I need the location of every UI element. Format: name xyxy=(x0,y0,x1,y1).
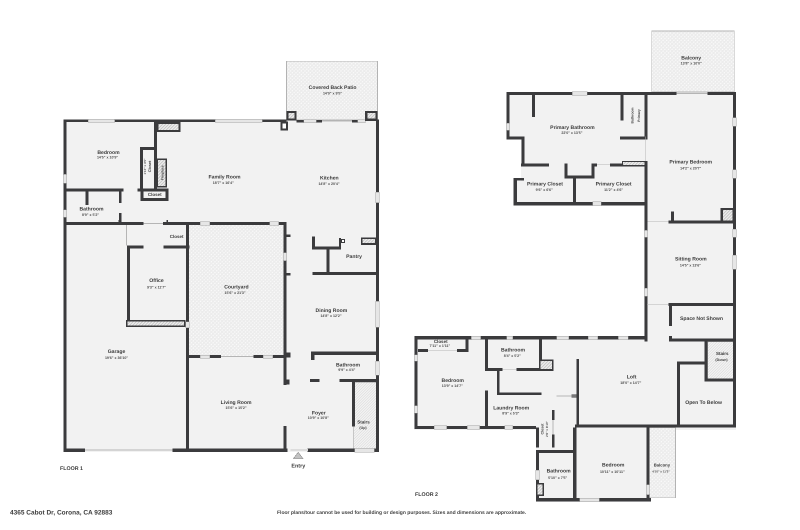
svg-text:9'9" x 4'4": 9'9" x 4'4" xyxy=(338,368,355,372)
svg-text:14'2" x 20'7": 14'2" x 20'7" xyxy=(680,166,701,170)
svg-text:14'8" x 20'4": 14'8" x 20'4" xyxy=(318,182,339,186)
svg-text:Closet: Closet xyxy=(170,234,184,239)
svg-text:Entry: Entry xyxy=(291,463,305,469)
svg-text:5'10" x 7'5": 5'10" x 7'5" xyxy=(548,476,567,480)
svg-text:(Up): (Up) xyxy=(359,426,367,430)
svg-text:22'0" x 13'5": 22'0" x 13'5" xyxy=(561,131,582,135)
svg-text:4365 Cabot Dr, Corona, CA 9288: 4365 Cabot Dr, Corona, CA 92883 xyxy=(10,510,113,517)
svg-text:Office: Office xyxy=(149,278,164,284)
svg-text:Balcony: Balcony xyxy=(681,55,701,61)
svg-text:Bathroom: Bathroom xyxy=(501,348,526,354)
svg-text:14'9" x 9'5": 14'9" x 9'5" xyxy=(323,91,342,95)
svg-text:(Down): (Down) xyxy=(715,358,728,362)
svg-text:18'0" x 14'7": 18'0" x 14'7" xyxy=(620,381,641,385)
svg-text:14'8" x 12'2": 14'8" x 12'2" xyxy=(320,314,341,318)
svg-text:Family Room: Family Room xyxy=(209,175,241,181)
svg-text:Primary Closet: Primary Closet xyxy=(596,182,632,188)
svg-text:Bedroom: Bedroom xyxy=(442,378,465,384)
svg-text:8'9" x 5'2": 8'9" x 5'2" xyxy=(82,213,99,217)
svg-text:Primary Bedroom: Primary Bedroom xyxy=(669,159,712,165)
svg-text:Floor plans/tour cannot be use: Floor plans/tour cannot be used for buil… xyxy=(277,510,527,516)
svg-text:Dining Room: Dining Room xyxy=(316,308,348,314)
svg-text:9'3" x 11'7": 9'3" x 11'7" xyxy=(147,285,166,289)
svg-text:FLOOR 1: FLOOR 1 xyxy=(60,466,83,472)
svg-text:Closet: Closet xyxy=(541,423,545,435)
svg-text:13'8" x 10'0": 13'8" x 10'0" xyxy=(681,62,702,66)
svg-text:Laundry Room: Laundry Room xyxy=(493,405,529,411)
svg-text:Sitting Room: Sitting Room xyxy=(675,256,707,262)
svg-text:18'7" x 16'4": 18'7" x 16'4" xyxy=(213,181,234,185)
svg-text:Covered Back Patio: Covered Back Patio xyxy=(309,85,357,91)
svg-text:Living Room: Living Room xyxy=(221,400,252,406)
svg-text:Kitchen: Kitchen xyxy=(320,176,339,182)
svg-text:13'9" x 14'7": 13'9" x 14'7" xyxy=(442,384,463,388)
svg-text:Pantry: Pantry xyxy=(346,254,362,260)
svg-text:14'5" x 10'9": 14'5" x 10'9" xyxy=(97,155,118,159)
svg-text:Stairs: Stairs xyxy=(716,351,729,356)
svg-text:10'11" x 10'11": 10'11" x 10'11" xyxy=(600,470,625,474)
svg-text:15'6" x 15'2": 15'6" x 15'2" xyxy=(226,406,247,410)
svg-text:Garage: Garage xyxy=(108,349,126,355)
svg-text:Bedroom: Bedroom xyxy=(602,463,625,469)
svg-text:Primary Bathroom: Primary Bathroom xyxy=(550,125,595,131)
svg-text:Open To Below: Open To Below xyxy=(685,400,722,406)
svg-text:Closet: Closet xyxy=(148,160,152,172)
svg-text:Closet: Closet xyxy=(148,192,162,197)
svg-text:Closet: Closet xyxy=(434,339,448,344)
svg-text:11'2" x 4'6": 11'2" x 4'6" xyxy=(604,188,623,192)
svg-text:Balcony: Balcony xyxy=(654,462,671,467)
svg-text:Primary Closet: Primary Closet xyxy=(527,182,563,188)
svg-text:Loft: Loft xyxy=(627,374,637,380)
svg-text:Fireplace: Fireplace xyxy=(160,165,164,180)
svg-text:7'11" x 1'11": 7'11" x 1'11" xyxy=(430,344,451,348)
svg-text:9'6" x 6'6": 9'6" x 6'6" xyxy=(536,188,553,192)
svg-text:FLOOR 2: FLOOR 2 xyxy=(415,492,438,498)
svg-text:4'10" x 11'3": 4'10" x 11'3" xyxy=(652,469,670,473)
svg-text:Bathroom: Bathroom xyxy=(79,207,104,213)
svg-text:15'6" x 21'3": 15'6" x 21'3" xyxy=(225,291,246,295)
svg-text:Space Not Shown: Space Not Shown xyxy=(680,316,723,322)
svg-text:1'10" x 4'5": 1'10" x 4'5" xyxy=(143,158,147,175)
svg-text:Bathroom: Bathroom xyxy=(547,469,572,475)
svg-text:8'9" x 5'3": 8'9" x 5'3" xyxy=(502,412,519,416)
svg-text:10'9" x 10'8": 10'9" x 10'8" xyxy=(308,416,329,420)
svg-text:Primary: Primary xyxy=(637,109,641,122)
svg-text:Stairs: Stairs xyxy=(357,419,370,424)
svg-text:14'5" x 13'6": 14'5" x 13'6" xyxy=(680,264,701,268)
svg-text:Courtyard: Courtyard xyxy=(224,285,248,291)
svg-text:2'8" x 8'10": 2'8" x 8'10" xyxy=(545,420,549,437)
svg-text:Bathroom: Bathroom xyxy=(631,107,635,123)
svg-text:8'4" x 5'2": 8'4" x 5'2" xyxy=(504,354,521,358)
svg-text:19'6" x 36'10": 19'6" x 36'10" xyxy=(105,356,128,360)
